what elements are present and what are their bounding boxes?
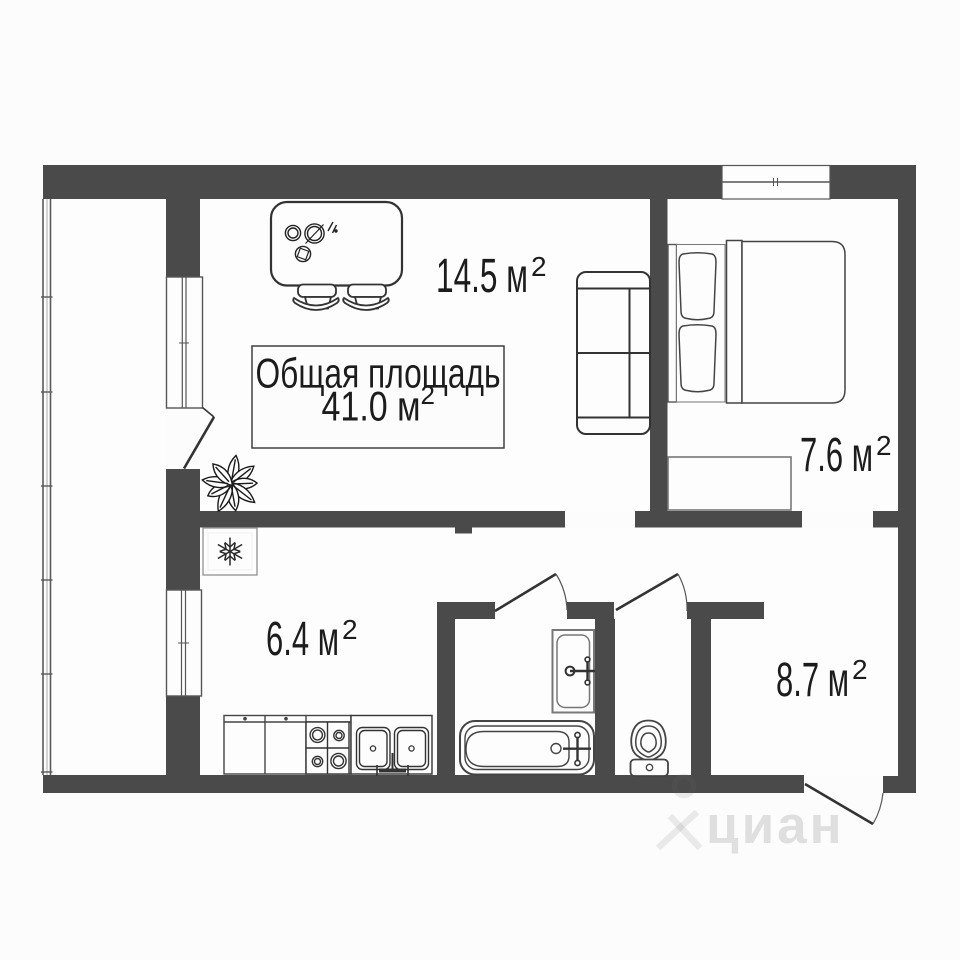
svg-text:8.7 м: 8.7 м (776, 654, 849, 707)
svg-text:6.4 м: 6.4 м (266, 613, 339, 666)
svg-text:2: 2 (876, 430, 892, 461)
svg-text:41.0 м: 41.0 м (322, 383, 421, 430)
svg-text:7.6 м: 7.6 м (800, 429, 873, 482)
svg-text:2: 2 (342, 614, 358, 645)
svg-text:14.5 м: 14.5 м (436, 250, 528, 303)
svg-text:2: 2 (421, 380, 435, 410)
svg-text:2: 2 (852, 654, 868, 685)
svg-text:циан: циан (706, 796, 845, 855)
svg-text:2: 2 (531, 251, 547, 282)
